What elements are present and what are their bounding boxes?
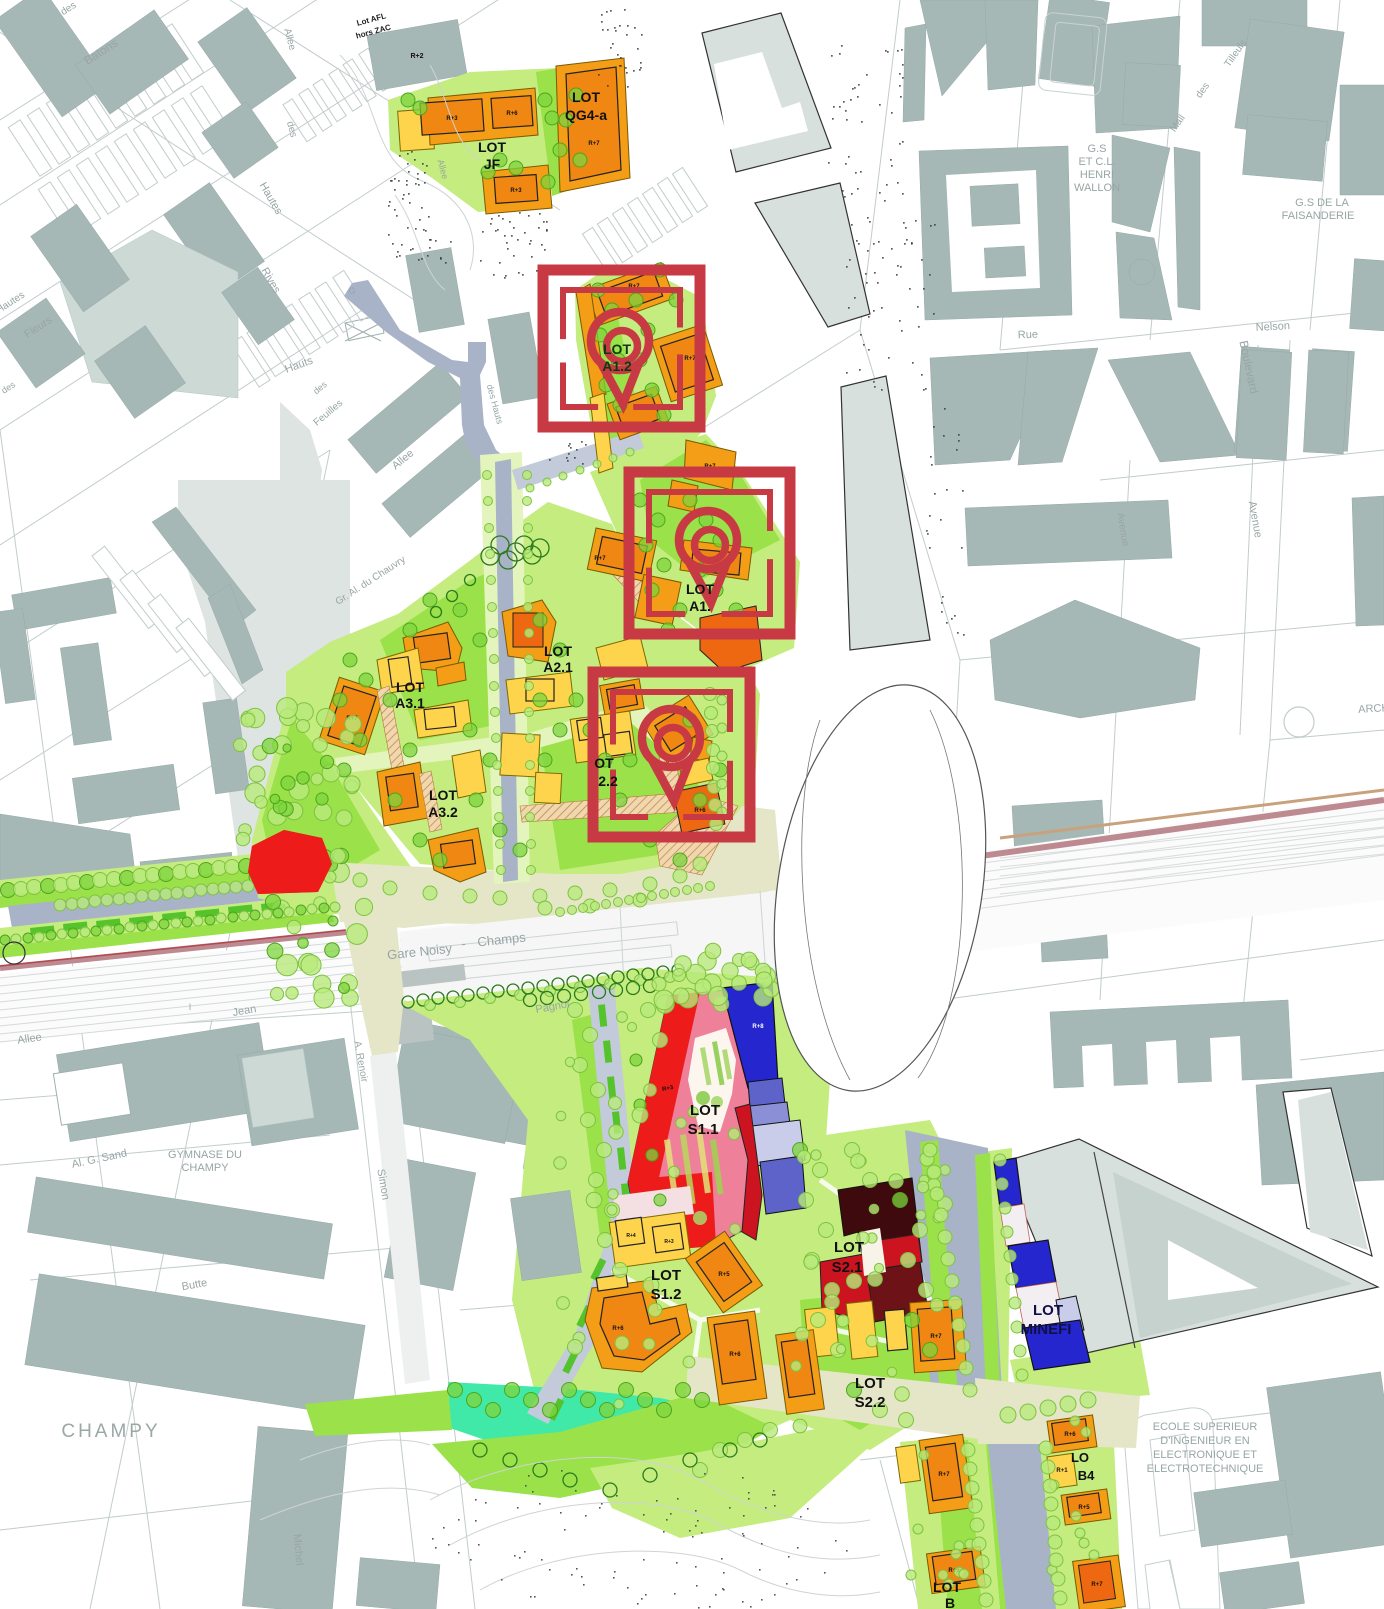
svg-text:R+7: R+7 [1091,1582,1103,1588]
svg-text:R+6: R+6 [506,111,518,117]
svg-text:R+3: R+3 [664,1239,674,1245]
svg-text:R+1: R+1 [1056,1468,1068,1474]
svg-text:LO: LO [1071,1450,1089,1465]
svg-text:LOT: LOT [690,1102,720,1119]
svg-text:LOT: LOT [855,1375,885,1392]
svg-text:A1.2: A1.2 [602,358,632,374]
svg-text:LOT: LOT [478,139,506,155]
svg-text:LOT: LOT [834,1239,864,1256]
svg-text:FAISANDERIE: FAISANDERIE [1282,210,1355,222]
svg-text:G.S: G.S [1088,143,1107,155]
svg-text:ELECTRONIQUE ET: ELECTRONIQUE ET [1153,1449,1257,1461]
svg-text:S2.2: S2.2 [855,1394,886,1411]
svg-text:R+5: R+5 [718,1272,730,1278]
svg-text:LOT: LOT [686,581,714,597]
svg-text:A3.1: A3.1 [395,695,425,711]
svg-text:B: B [945,1595,955,1609]
svg-text:R+6: R+6 [694,808,706,814]
svg-text:ARCH: ARCH [1358,702,1384,716]
svg-text:Rue: Rue [1018,329,1039,342]
svg-text:A3.2: A3.2 [428,804,458,820]
svg-text:LOT: LOT [651,1267,681,1284]
svg-text:A1.: A1. [689,598,711,614]
svg-text:D'INGENIEUR EN: D'INGENIEUR EN [1160,1435,1250,1447]
svg-text:G: G [348,286,355,296]
svg-text:S1.2: S1.2 [651,1286,682,1303]
svg-text:ET C.L.: ET C.L. [1078,156,1115,168]
svg-text:l: l [189,1002,191,1012]
svg-text:CHAMPY: CHAMPY [61,1421,160,1442]
svg-text:LOT: LOT [933,1579,961,1595]
svg-text:LOT: LOT [572,89,600,105]
svg-text:LOT: LOT [1033,1302,1063,1319]
svg-text:R+7: R+7 [594,556,606,562]
svg-text:R+5: R+5 [1078,1505,1090,1511]
svg-text:R+4: R+4 [626,1233,636,1239]
svg-text:B4: B4 [1078,1468,1095,1483]
svg-text:R+6: R+6 [1064,1432,1076,1438]
svg-text:R+8: R+8 [752,1024,764,1030]
svg-text:WALLON: WALLON [1074,182,1120,194]
svg-text:LOT: LOT [603,341,631,357]
svg-text:S2.1: S2.1 [832,1259,863,1276]
svg-text:ELECTROTECHNIQUE: ELECTROTECHNIQUE [1147,1463,1264,1475]
svg-text:2.2: 2.2 [598,773,618,789]
svg-text:R+6: R+6 [612,1326,624,1332]
svg-text:MINEFI: MINEFI [1021,1321,1072,1338]
svg-text:LOT: LOT [429,787,457,803]
svg-text:JF: JF [484,156,501,172]
svg-text:R+7: R+7 [684,356,696,362]
svg-text:LOT: LOT [544,643,572,659]
svg-text:OT: OT [594,755,614,771]
svg-text:ECOLE SUPERIEUR: ECOLE SUPERIEUR [1153,1421,1258,1433]
svg-text:Nelson: Nelson [1255,320,1290,334]
svg-text:R+7: R+7 [588,141,600,147]
svg-text:R+7: R+7 [938,1472,950,1478]
svg-text:R+7: R+7 [930,1334,942,1340]
svg-text:HENRI: HENRI [1080,169,1114,181]
svg-text:S1.1: S1.1 [688,1121,719,1138]
svg-text:A2.1: A2.1 [543,659,573,675]
svg-text:R+3: R+3 [510,188,522,194]
svg-text:LOT: LOT [396,679,424,695]
svg-text:R+2: R+2 [410,53,423,60]
svg-text:G.S DE LA: G.S DE LA [1295,197,1349,209]
svg-text:R+6: R+6 [729,1352,741,1358]
svg-text:CHAMPY: CHAMPY [181,1162,229,1174]
svg-text:QG4-a: QG4-a [565,107,607,123]
svg-text:GYMNASE DU: GYMNASE DU [168,1149,242,1161]
